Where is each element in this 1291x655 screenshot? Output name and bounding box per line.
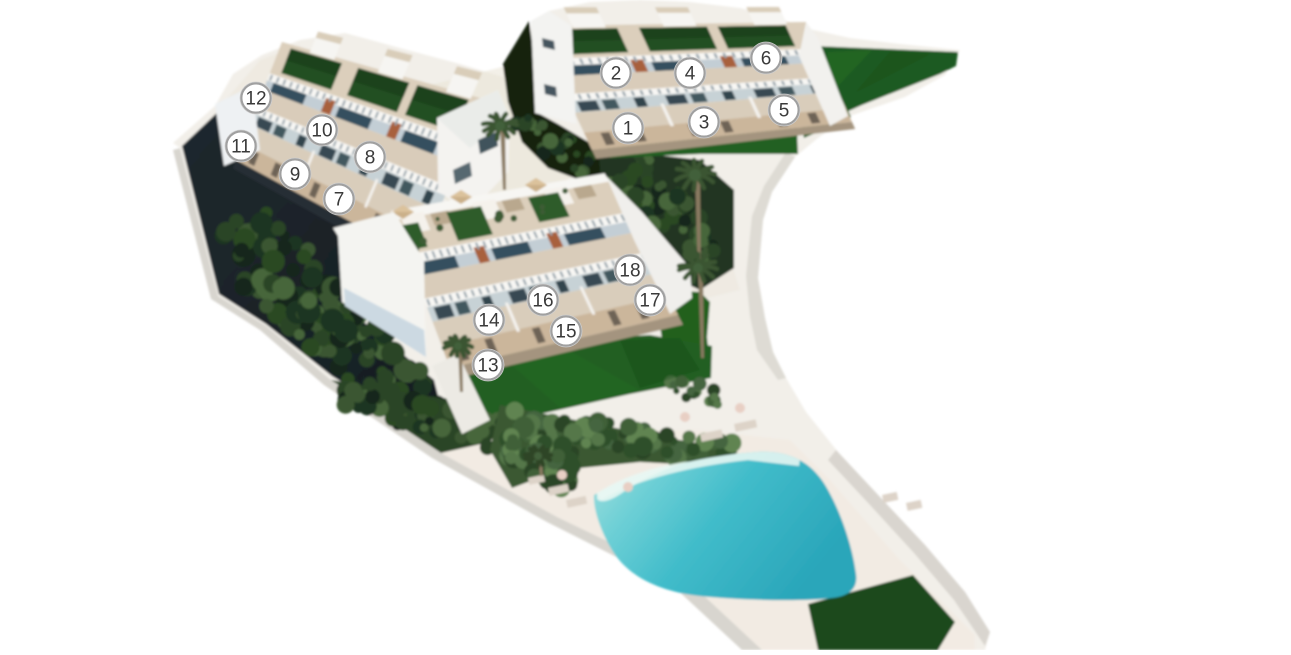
svg-text:6: 6 [761, 49, 772, 70]
svg-text:15: 15 [555, 322, 576, 343]
svg-text:16: 16 [532, 291, 553, 312]
svg-text:1: 1 [623, 119, 634, 140]
svg-text:17: 17 [639, 291, 660, 312]
svg-text:9: 9 [290, 165, 301, 186]
svg-text:10: 10 [311, 121, 332, 142]
svg-text:11: 11 [231, 137, 251, 158]
svg-text:13: 13 [477, 356, 498, 377]
svg-text:8: 8 [365, 148, 376, 169]
svg-text:4: 4 [685, 64, 696, 85]
svg-text:2: 2 [611, 64, 622, 85]
svg-text:3: 3 [699, 113, 710, 134]
svg-text:5: 5 [779, 101, 790, 122]
svg-text:14: 14 [478, 311, 500, 332]
svg-text:12: 12 [245, 89, 266, 110]
svg-text:18: 18 [619, 261, 640, 282]
svg-text:7: 7 [334, 190, 345, 211]
